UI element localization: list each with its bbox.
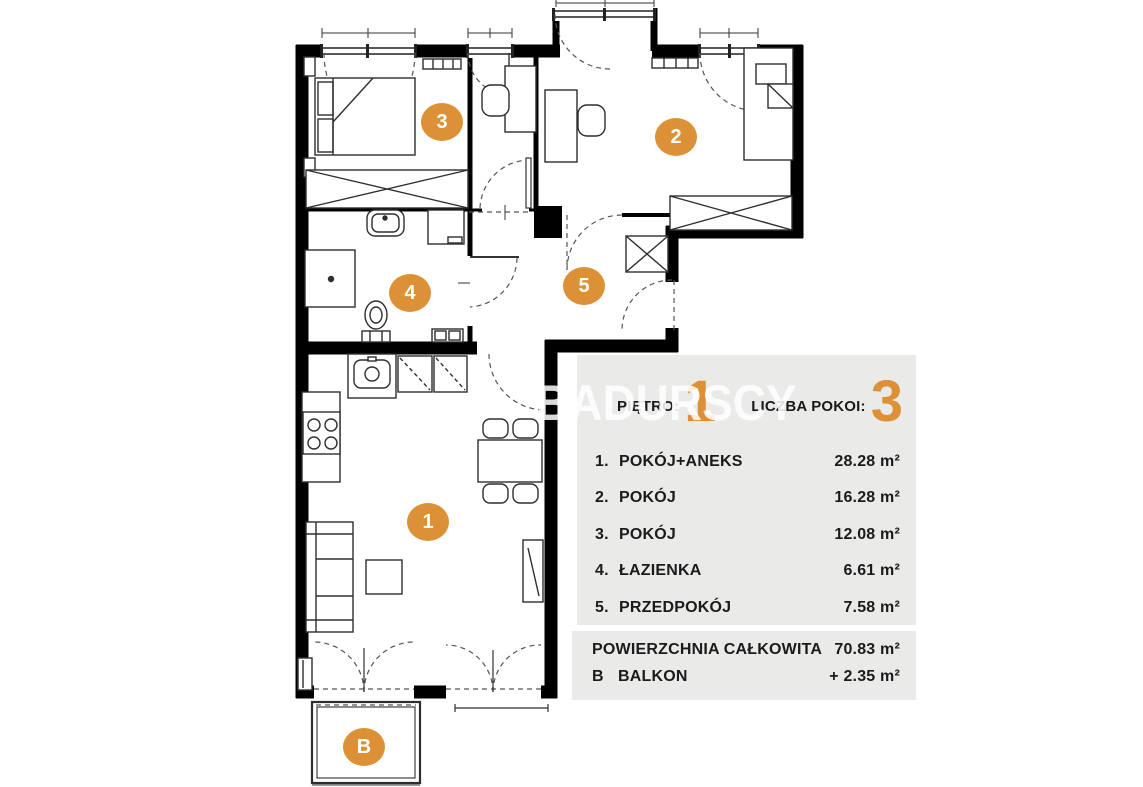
shaft xyxy=(298,658,312,690)
room-list-row: 3. POKÓJ 12.08 m² xyxy=(595,526,900,562)
floorplan-page: BADURSCY PIĘTRO: 1 LICZBA POKOI: 3 1. PO… xyxy=(0,0,1143,787)
bed-room2 xyxy=(744,48,793,160)
room-number-marker: 1 xyxy=(407,503,449,541)
total-area-value: 70.83 m² xyxy=(834,641,900,659)
totals-block: POWIERZCHNIA CAŁKOWITA 70.83 m² B BALKON… xyxy=(592,641,900,686)
room-list-row: 5. PRZEDPOKÓJ 7.58 m² xyxy=(595,599,900,635)
dining-table xyxy=(478,419,542,503)
hall-furniture xyxy=(626,236,668,272)
room-number: 3. xyxy=(595,526,619,544)
washer-marker xyxy=(432,329,463,342)
watermark-text: BADURSCY xyxy=(536,374,797,432)
balcony-letter: B xyxy=(592,668,618,686)
room-list: 1. POKÓJ+ANEKS 28.28 m² 2. POKÓJ 16.28 m… xyxy=(595,453,900,635)
balcony-row: B BALKON + 2.35 m² xyxy=(592,668,900,686)
rooms-count-value: 3 xyxy=(871,379,902,425)
coffee-table xyxy=(366,560,402,594)
room-area: 6.61 m² xyxy=(843,562,900,580)
balcony-label: BALKON xyxy=(618,668,829,686)
room-number-marker: 5 xyxy=(563,267,605,305)
radiator xyxy=(423,59,461,69)
room-name: POKÓJ xyxy=(619,489,834,507)
tv-unit xyxy=(523,540,543,602)
room-list-row: 4. ŁAZIENKA 6.61 m² xyxy=(595,562,900,598)
sink xyxy=(367,210,404,236)
room-area: 28.28 m² xyxy=(834,453,900,471)
room-number-marker: 4 xyxy=(389,274,431,312)
totals-panel: POWIERZCHNIA CAŁKOWITA 70.83 m² B BALKON… xyxy=(572,631,916,700)
room-list-row: 2. POKÓJ 16.28 m² xyxy=(595,489,900,525)
room-area: 7.58 m² xyxy=(843,599,900,617)
room-area: 12.08 m² xyxy=(834,526,900,544)
wardrobe-room3 xyxy=(306,170,468,208)
desk-room2 xyxy=(545,90,605,162)
room-number-marker: B xyxy=(343,728,385,766)
total-area-row: POWIERZCHNIA CAŁKOWITA 70.83 m² xyxy=(592,641,900,659)
room-name: ŁAZIENKA xyxy=(619,562,843,580)
room-name: POKÓJ xyxy=(619,526,834,544)
room-area: 16.28 m² xyxy=(834,489,900,507)
toilet xyxy=(362,301,390,342)
wardrobe-hall xyxy=(626,236,668,272)
room-number-marker: 2 xyxy=(655,118,697,156)
stove xyxy=(303,412,340,454)
room-list-row: 1. POKÓJ+ANEKS 28.28 m² xyxy=(595,453,900,489)
sofa xyxy=(306,522,353,632)
wardrobe-room2 xyxy=(670,196,792,230)
room-number: 2. xyxy=(595,489,619,507)
room-number: 1. xyxy=(595,453,619,471)
bathroom-fixtures xyxy=(305,210,464,342)
room-number: 5. xyxy=(595,599,619,617)
room-name: POKÓJ+ANEKS xyxy=(619,453,834,471)
room3-furniture xyxy=(304,57,536,208)
desk-nook xyxy=(482,66,536,132)
balcony-value: + 2.35 m² xyxy=(829,668,900,686)
room-number: 4. xyxy=(595,562,619,580)
room-number-marker: 3 xyxy=(421,103,463,141)
cabinet xyxy=(428,210,464,244)
radiator xyxy=(652,58,698,68)
shower xyxy=(305,250,355,307)
room-name: PRZEDPOKÓJ xyxy=(619,599,843,617)
total-area-label: POWIERZCHNIA CAŁKOWITA xyxy=(592,641,834,659)
